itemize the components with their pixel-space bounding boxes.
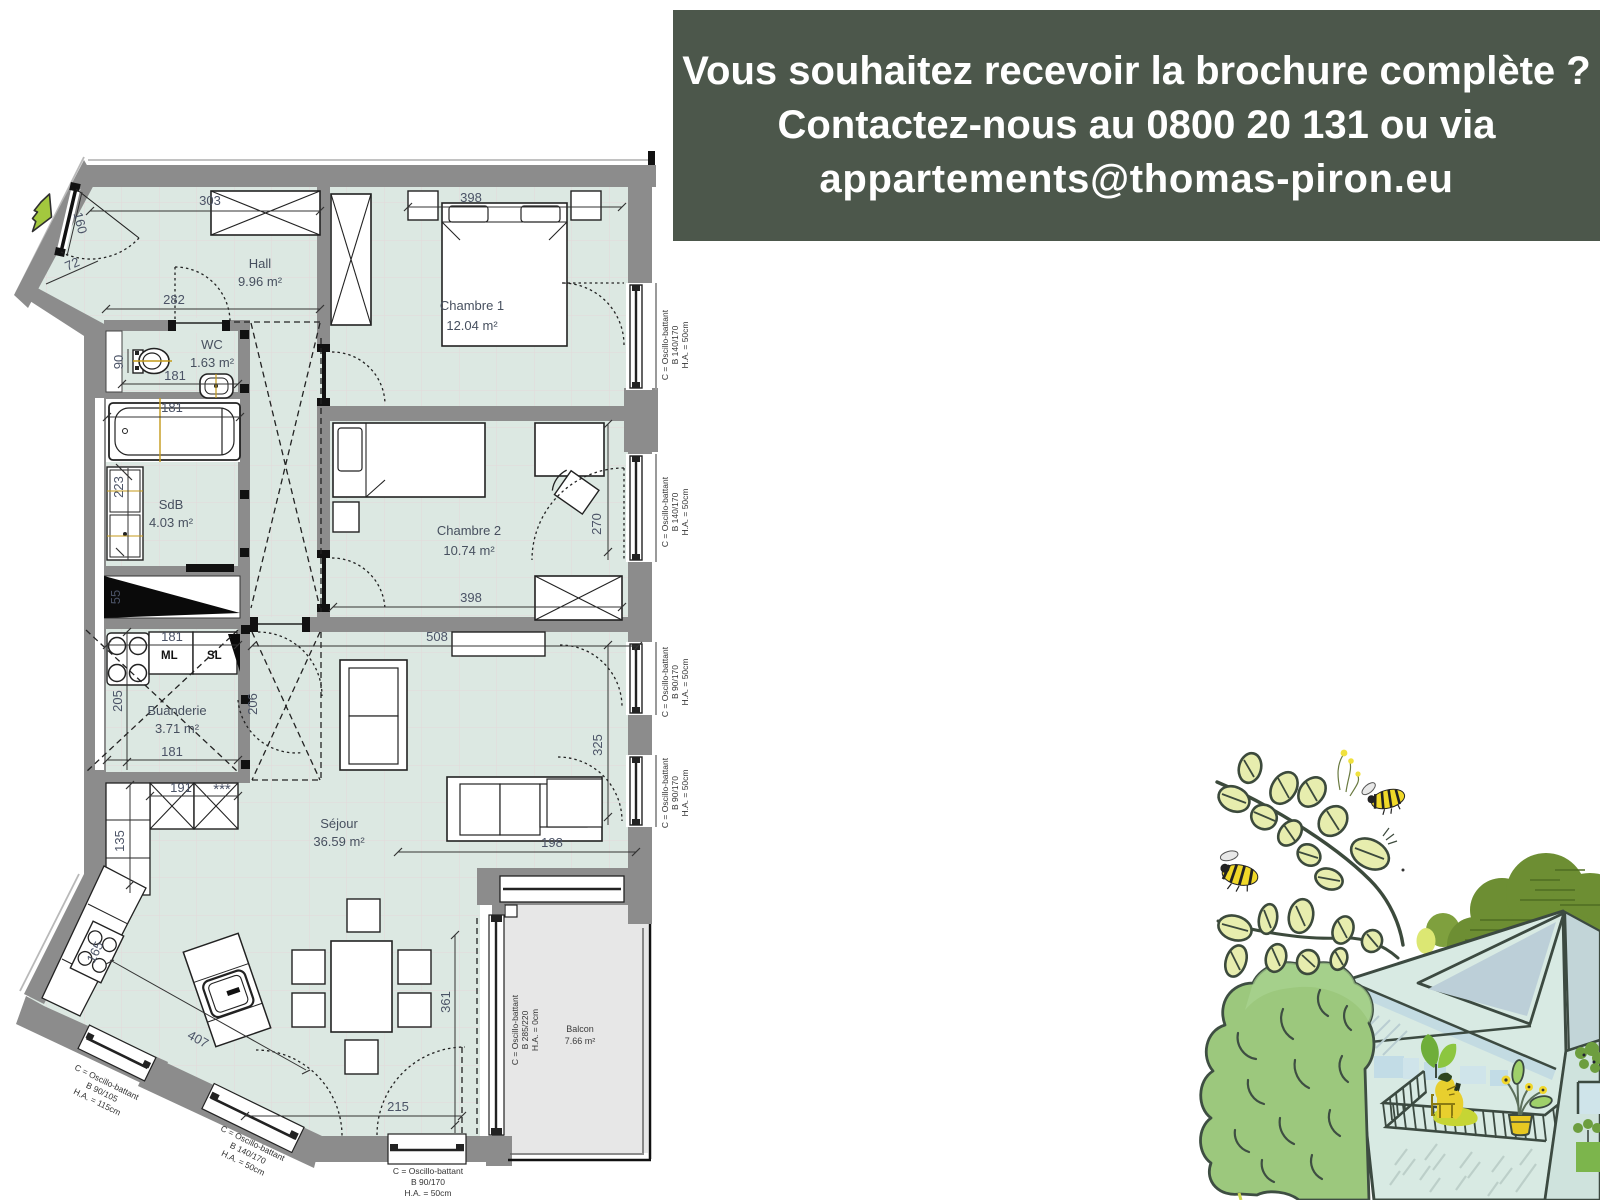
svg-text:C = Oscillo-battant: C = Oscillo-battant xyxy=(510,994,520,1065)
svg-text:C = Oscillo-battant: C = Oscillo-battant xyxy=(660,757,670,828)
svg-text:7.66 m²: 7.66 m² xyxy=(565,1036,596,1046)
svg-text:H.A. = 50cm: H.A. = 50cm xyxy=(404,1188,451,1198)
svg-text:205: 205 xyxy=(110,690,125,712)
svg-text:C = Oscillo-battant: C = Oscillo-battant xyxy=(660,309,670,380)
svg-text:SdB: SdB xyxy=(159,497,184,512)
svg-text:9.96 m²: 9.96 m² xyxy=(238,274,283,289)
svg-text:3.71 m²: 3.71 m² xyxy=(155,721,200,736)
svg-text:Balcon: Balcon xyxy=(566,1024,594,1034)
svg-text:Hall: Hall xyxy=(249,256,272,271)
svg-text:10.74 m²: 10.74 m² xyxy=(443,543,495,558)
svg-text:H.A. = 0cm: H.A. = 0cm xyxy=(530,1009,540,1051)
svg-text:90: 90 xyxy=(111,355,126,369)
svg-text:181: 181 xyxy=(164,368,186,383)
svg-text:215: 215 xyxy=(387,1099,409,1114)
svg-text:C = Oscillo-battant: C = Oscillo-battant xyxy=(660,476,670,547)
svg-text:181: 181 xyxy=(161,400,183,415)
svg-text:B 140/170: B 140/170 xyxy=(670,325,680,364)
svg-text:282: 282 xyxy=(163,292,185,307)
svg-text:206: 206 xyxy=(245,693,260,715)
svg-text:303: 303 xyxy=(199,193,221,208)
svg-text:B 90/170: B 90/170 xyxy=(670,776,680,810)
svg-text:B 90/170: B 90/170 xyxy=(670,665,680,699)
svg-text:135: 135 xyxy=(112,830,127,852)
svg-text:181: 181 xyxy=(161,744,183,759)
svg-text:Chambre 2: Chambre 2 xyxy=(437,523,501,538)
svg-text:Chambre 1: Chambre 1 xyxy=(440,298,504,313)
svg-text:325: 325 xyxy=(590,734,605,756)
svg-text:1.63 m²: 1.63 m² xyxy=(190,355,235,370)
svg-text:191: 191 xyxy=(170,780,192,795)
svg-text:270: 270 xyxy=(589,513,604,535)
svg-text:181: 181 xyxy=(161,629,183,644)
svg-text:Séjour: Séjour xyxy=(320,816,358,831)
svg-text:Buanderie: Buanderie xyxy=(147,703,206,718)
svg-text:223: 223 xyxy=(111,476,126,498)
svg-text:B 90/170: B 90/170 xyxy=(411,1177,445,1187)
svg-text:198: 198 xyxy=(541,835,563,850)
svg-text:***: *** xyxy=(213,781,231,798)
svg-text:H.A. = 50cm: H.A. = 50cm xyxy=(680,658,690,705)
svg-text:H.A. = 50cm: H.A. = 50cm xyxy=(680,321,690,368)
svg-text:398: 398 xyxy=(460,590,482,605)
svg-text:55: 55 xyxy=(108,590,123,604)
svg-text:398: 398 xyxy=(460,190,482,205)
svg-text:H.A. = 50cm: H.A. = 50cm xyxy=(680,769,690,816)
svg-text:B 285/220: B 285/220 xyxy=(520,1010,530,1049)
svg-text:C = Oscillo-battant: C = Oscillo-battant xyxy=(660,646,670,717)
svg-text:4.03 m²: 4.03 m² xyxy=(149,515,194,530)
svg-text:C = Oscillo-battant: C = Oscillo-battant xyxy=(393,1166,464,1176)
svg-text:ML: ML xyxy=(161,650,178,662)
svg-text:36.59 m²: 36.59 m² xyxy=(313,834,365,849)
svg-text:361: 361 xyxy=(438,991,453,1013)
svg-text:B 140/170: B 140/170 xyxy=(670,492,680,531)
svg-text:12.04 m²: 12.04 m² xyxy=(446,318,498,333)
svg-text:508: 508 xyxy=(426,629,448,644)
svg-text:WC: WC xyxy=(201,337,223,352)
svg-text:H.A. = 50cm: H.A. = 50cm xyxy=(680,488,690,535)
